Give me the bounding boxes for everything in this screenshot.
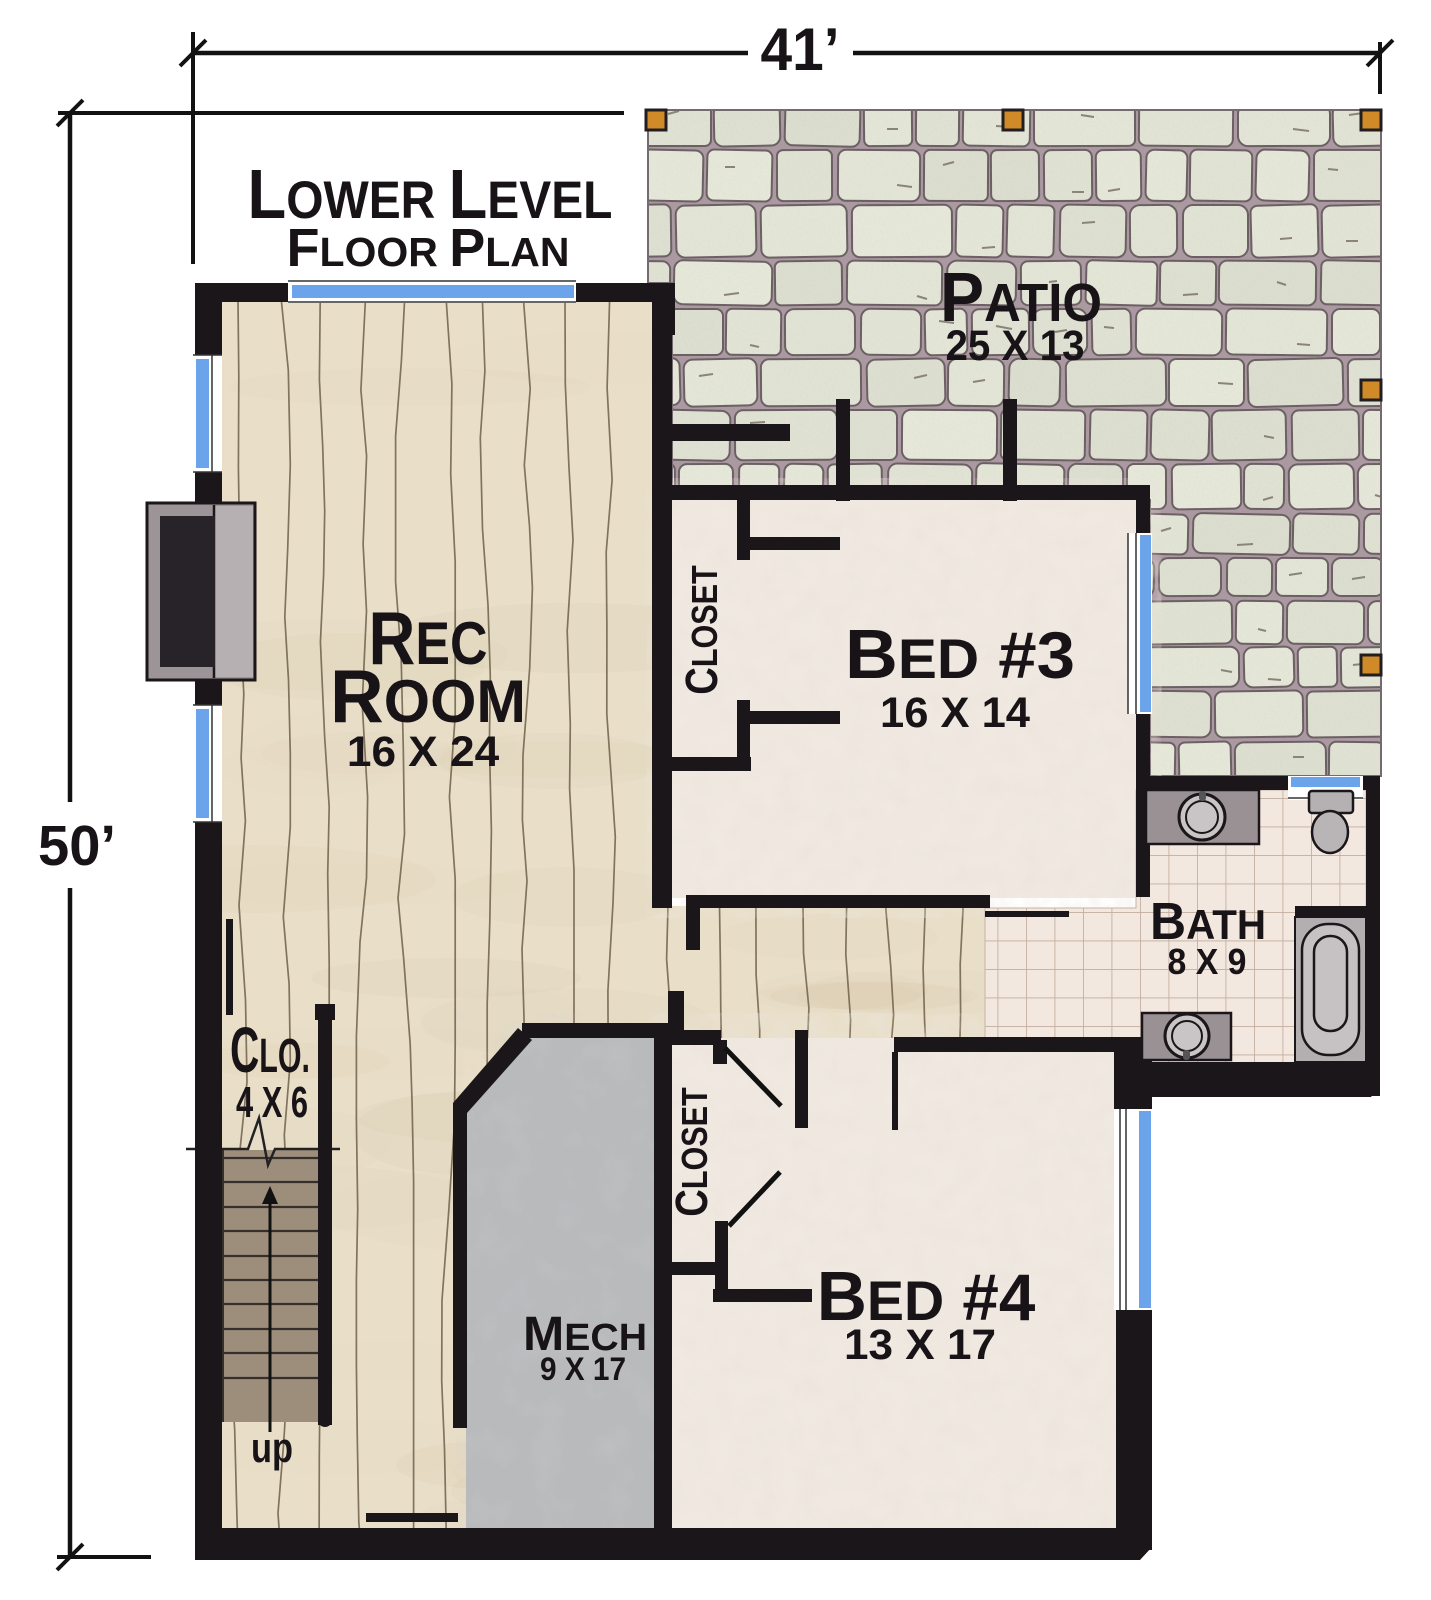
svg-text:13 X 17: 13 X 17 [844, 1321, 996, 1368]
svg-text:41’: 41’ [760, 17, 839, 84]
svg-text:9 X 17: 9 X 17 [540, 1351, 626, 1387]
svg-text:16 X 14: 16 X 14 [880, 689, 1030, 737]
svg-text:8 X 9: 8 X 9 [1168, 942, 1247, 982]
svg-text:25 X 13: 25 X 13 [946, 321, 1085, 369]
svg-text:16 X 24: 16 X 24 [347, 729, 499, 776]
svg-text:BED #3: BED #3 [845, 615, 1075, 693]
svg-text:up: up [251, 1425, 293, 1472]
svg-text:4 X 6: 4 X 6 [236, 1079, 308, 1128]
svg-text:50’: 50’ [38, 814, 116, 877]
